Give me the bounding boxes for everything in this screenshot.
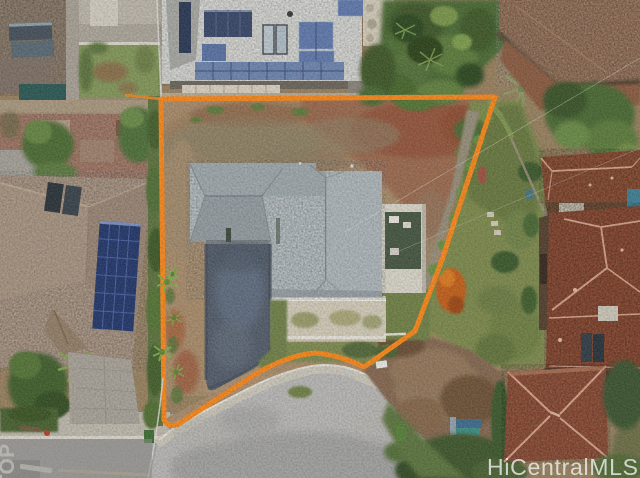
svg-text:HiCentralMLS: HiCentralMLS: [487, 454, 638, 478]
